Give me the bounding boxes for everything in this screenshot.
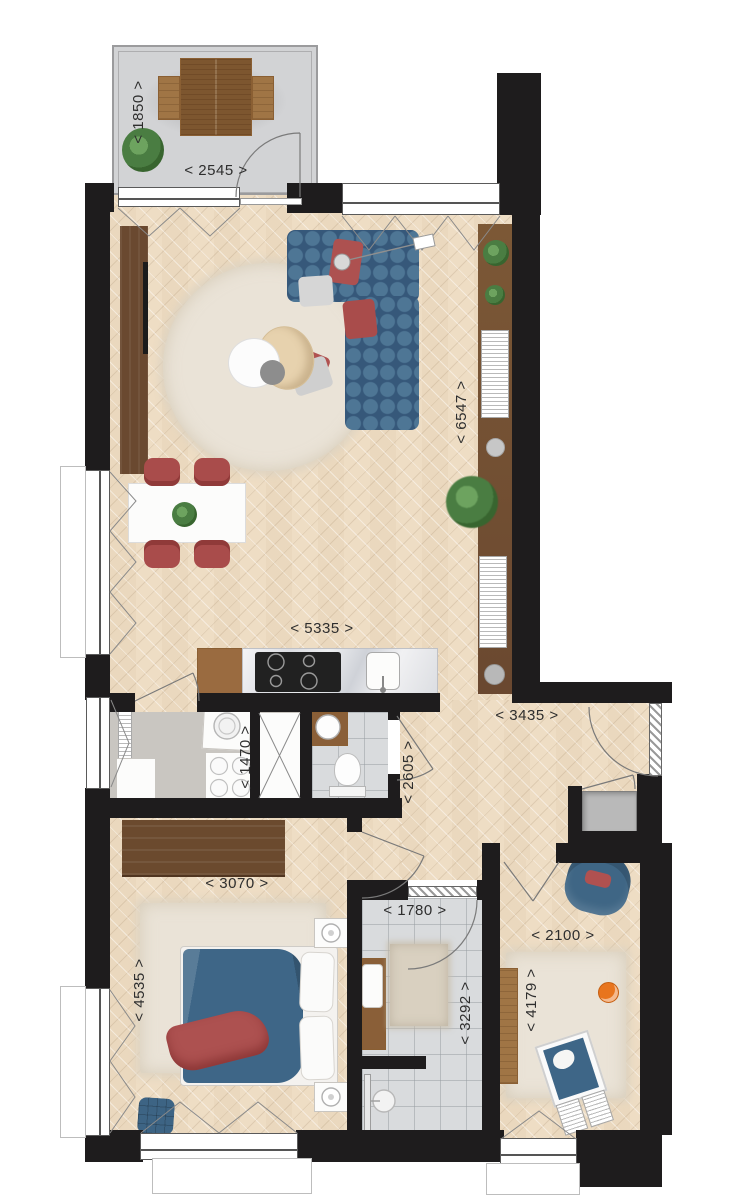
storage-closet bbox=[582, 791, 637, 833]
dim-bathroom-height: < 3292 > bbox=[457, 968, 475, 1058]
wall-left-lower bbox=[85, 788, 110, 992]
bedroom-wardrobe bbox=[122, 820, 285, 877]
bedroom2-bottom-window bbox=[500, 1138, 577, 1165]
balcony-table bbox=[180, 58, 252, 136]
wall-left-mid bbox=[85, 652, 110, 700]
kitchen-sink bbox=[366, 652, 400, 690]
bedroom-left-window bbox=[85, 988, 110, 1136]
wall-bottom-right-block bbox=[576, 1130, 662, 1187]
shower-bar bbox=[364, 1074, 371, 1132]
closet-doors bbox=[258, 712, 302, 800]
bathroom-sink bbox=[362, 964, 383, 1008]
dim-bedroom2-height: < 4179 > bbox=[523, 955, 541, 1045]
kitchen-cabinet-wood bbox=[197, 648, 243, 694]
bath-mat bbox=[390, 944, 448, 1026]
balcony-door-threshold bbox=[240, 198, 302, 205]
sofa-cushion-red-2 bbox=[342, 298, 378, 339]
dim-living-width: < 5335 > bbox=[277, 620, 367, 638]
wall-hall-top bbox=[512, 682, 672, 703]
dim-bedroom-width: < 3070 > bbox=[192, 875, 282, 893]
dining-chair-1 bbox=[144, 458, 180, 486]
tv-screen bbox=[143, 262, 148, 354]
shelf-pot bbox=[484, 664, 505, 685]
shelf-plant-1 bbox=[483, 240, 509, 266]
wall-left-upper bbox=[85, 203, 110, 473]
cooktop bbox=[255, 652, 341, 692]
wall-toilet-right-bottom bbox=[388, 774, 400, 818]
palm-plant bbox=[446, 476, 498, 528]
dining-chair-3 bbox=[144, 540, 180, 568]
dining-chair-4 bbox=[194, 540, 230, 568]
dim-bedroom2-width: < 2100 > bbox=[518, 927, 608, 945]
bedroom-left-window-sill bbox=[60, 986, 86, 1138]
balcony-window bbox=[118, 187, 240, 207]
bedroom-bottom-window bbox=[140, 1133, 298, 1160]
wall-kitchen-left bbox=[110, 693, 135, 712]
shelf-bowl bbox=[486, 438, 505, 457]
bedroom2-bottom-window-sill bbox=[486, 1163, 580, 1195]
bathroom-door-leaf bbox=[408, 886, 477, 897]
bedroom-bottom-window-sill bbox=[152, 1158, 312, 1194]
bedroom2-orange-toy bbox=[598, 982, 619, 1003]
sofa-cushion-gray-1 bbox=[298, 275, 334, 307]
dining-table-plant bbox=[172, 502, 197, 527]
wall-bottom-mid bbox=[296, 1130, 504, 1162]
shelf-books-1 bbox=[481, 330, 509, 418]
dim-utility-width: < 1470 > bbox=[237, 712, 255, 802]
sofa-cushion-red-1 bbox=[328, 238, 364, 286]
dim-balcony-depth: < 1850 > bbox=[130, 67, 148, 157]
wall-bedroom2-right bbox=[640, 843, 672, 1135]
dining-chair-2 bbox=[194, 458, 230, 486]
wall-bathroom-top-left bbox=[347, 880, 408, 900]
utility-table bbox=[116, 758, 156, 800]
balcony-chair-left bbox=[158, 76, 180, 120]
entrance-door-leaf bbox=[649, 703, 662, 776]
nightstand-top bbox=[314, 918, 348, 948]
utility-shelf bbox=[118, 710, 132, 764]
wall-closet-bottom bbox=[568, 831, 649, 850]
wall-bedroom-hall-top bbox=[347, 815, 362, 832]
dim-bathroom-width: < 1780 > bbox=[370, 902, 460, 920]
living-left-window-sill bbox=[60, 466, 86, 658]
bed-pillow-2 bbox=[299, 1015, 335, 1080]
nightstand-bottom bbox=[314, 1082, 348, 1112]
balcony-chair-right bbox=[252, 76, 274, 120]
wall-living-right bbox=[512, 210, 540, 688]
dim-living-height: < 6547 > bbox=[453, 367, 471, 457]
wall-bedroom-bathroom bbox=[347, 893, 362, 1140]
utility-window bbox=[86, 697, 110, 789]
toilet-vanity bbox=[312, 712, 348, 746]
toilet-bowl bbox=[334, 753, 361, 786]
bed-pillow-1 bbox=[299, 951, 335, 1012]
shelf-books-2 bbox=[479, 556, 507, 648]
toilet-tank bbox=[329, 786, 366, 797]
dim-balcony-width: < 2545 > bbox=[171, 162, 261, 180]
wall-chimney-top-right bbox=[497, 73, 541, 215]
shower-half-wall bbox=[362, 1056, 426, 1069]
shelf-plant-2 bbox=[485, 285, 505, 305]
wall-kitchen-right bbox=[197, 693, 440, 712]
dim-hallway-height: < 2605 > bbox=[400, 727, 418, 817]
wall-bathroom-bedroom2 bbox=[482, 843, 500, 1140]
wall-closet-toilet bbox=[300, 712, 312, 800]
living-left-window bbox=[85, 470, 110, 655]
wall-toilet-right-top bbox=[388, 712, 400, 720]
living-top-window bbox=[342, 183, 500, 215]
floor-plan: < 1850 > < 2545 > < 6547 > < 5335 > < 34… bbox=[0, 0, 739, 1200]
footstool-gray bbox=[260, 360, 285, 385]
dim-bedroom-height: < 4535 > bbox=[131, 945, 149, 1035]
dim-hallway-width: < 3435 > bbox=[482, 707, 572, 725]
